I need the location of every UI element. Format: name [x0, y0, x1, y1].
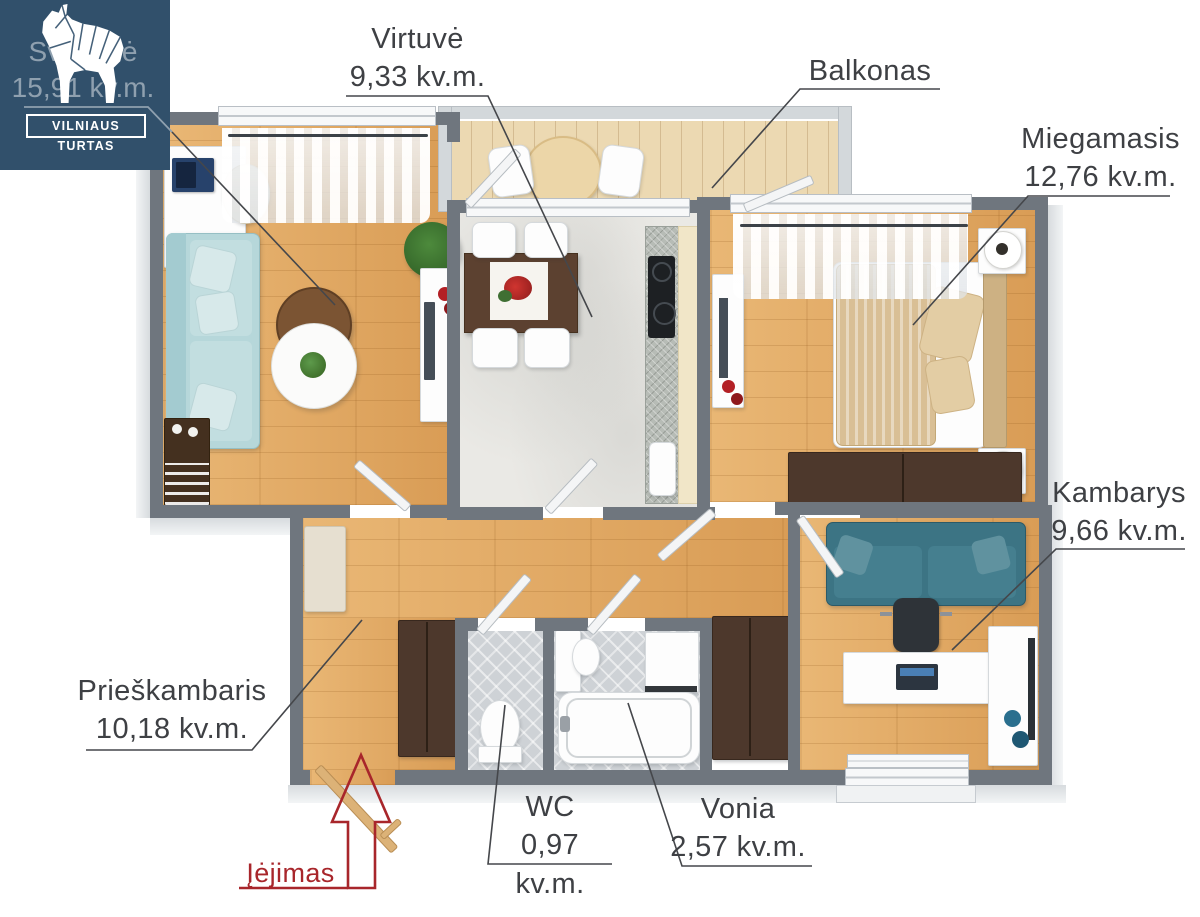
- wall-extrusion-left: [136, 118, 150, 518]
- balcony-railing-top: [440, 106, 852, 121]
- room-label-kambarys: Kambarys 9,66 kv.m.: [1044, 474, 1194, 551]
- room-label-miegamasis: Miegamasis 12,76 kv.m.: [1008, 120, 1193, 197]
- room-label-balkonas: Balkonas: [795, 52, 945, 90]
- shelf-decor: [188, 427, 198, 437]
- shelf-decor: [172, 424, 182, 434]
- wall-segment: [1035, 197, 1048, 515]
- wall-segment: [697, 197, 710, 515]
- room-label-wc: WC 0,97 kv.m.: [485, 788, 615, 903]
- office-chair-arm: [880, 612, 892, 616]
- living-tv: [424, 302, 435, 380]
- wall-segment: [455, 618, 468, 770]
- room-area: 10,18 kv.m.: [72, 710, 272, 748]
- red-vase: [731, 393, 743, 405]
- room-area: 9,66 kv.m.: [1044, 512, 1194, 550]
- wall-segment: [645, 618, 705, 631]
- red-vase: [722, 380, 735, 393]
- laptop-screen: [176, 162, 196, 188]
- room-area: 2,57 kv.m.: [658, 828, 818, 866]
- room-name: WC: [485, 788, 615, 826]
- bookshelf: [164, 418, 210, 506]
- wall-segment: [395, 770, 845, 785]
- kitchen-counter-cream: [678, 226, 698, 504]
- room-area: 12,76 kv.m.: [1008, 158, 1193, 196]
- bed-headboard: [983, 264, 1007, 448]
- bedroom-curtain-rod: [740, 224, 968, 227]
- entrance-text: Įėjimas: [228, 856, 353, 892]
- desk-laptop-screen: [900, 668, 934, 676]
- wall-segment: [447, 112, 460, 142]
- office-chair: [893, 598, 939, 652]
- washing-machine: [645, 632, 699, 692]
- balcony-chair: [487, 143, 536, 198]
- flower-leaves: [498, 290, 512, 302]
- office-chair-arm: [940, 612, 952, 616]
- room-area: 9,33 kv.m.: [330, 58, 505, 96]
- room-name: Balkonas: [795, 52, 945, 90]
- room-label-virtuve: Virtuvė 9,33 kv.m.: [330, 20, 505, 97]
- floor-plan: Svetainė 15,91 kv.m. VILNIAUS TURTAS: [0, 0, 1200, 917]
- living-window: [218, 106, 436, 126]
- closet-wardrobe: [712, 616, 790, 760]
- bathtub-inner: [566, 698, 692, 758]
- bedside-lamp-center: [996, 243, 1008, 255]
- wardrobe-handle-line: [749, 618, 751, 756]
- bedroom-tv: [719, 298, 728, 378]
- bathroom-sink: [572, 638, 600, 676]
- cooktop-burner: [653, 302, 676, 325]
- bedroom-window: [730, 194, 972, 213]
- bed-pillow: [924, 355, 977, 416]
- wall-segment: [150, 505, 350, 518]
- cooktop-burner: [652, 262, 672, 282]
- blue-decor: [1004, 710, 1021, 727]
- dining-chair: [472, 328, 518, 368]
- living-curtain: [222, 128, 430, 223]
- kambarys-radiator: [847, 754, 969, 768]
- entrance-threshold: [310, 770, 395, 785]
- brand-name: VILNIAUS TURTAS: [26, 114, 146, 138]
- wolf-logo-icon: [20, 4, 148, 114]
- wall-segment: [700, 618, 712, 770]
- wall-segment: [447, 507, 543, 520]
- wardrobe-handle-line: [426, 622, 428, 752]
- room-label-vonia: Vonia 2,57 kv.m.: [658, 790, 818, 867]
- room-label-prieskambaris: Prieškambaris 10,18 kv.m.: [72, 672, 272, 749]
- room-name: Virtuvė: [330, 20, 505, 58]
- room-name: Prieškambaris: [72, 672, 272, 710]
- kambarys-tv: [1028, 638, 1035, 740]
- kitchen-sink: [649, 442, 676, 496]
- entrance-label: Įėjimas: [228, 856, 353, 892]
- bathtub-faucet: [560, 716, 570, 732]
- toilet-tank: [478, 746, 522, 763]
- dining-chair: [524, 328, 570, 368]
- room-name: Vonia: [658, 790, 818, 828]
- wardrobe-handle-line: [902, 454, 904, 506]
- wall-segment: [860, 505, 1052, 518]
- blue-decor: [1012, 731, 1029, 748]
- wall-segment: [543, 618, 554, 770]
- wall-segment: [150, 112, 163, 518]
- kitchen-window: [466, 198, 690, 217]
- wall-segment: [447, 205, 460, 520]
- table-plant: [300, 352, 326, 378]
- dining-chair: [524, 222, 568, 258]
- living-sofa-back: [166, 233, 186, 447]
- wall-segment: [290, 505, 303, 785]
- sofa-pillow: [194, 290, 240, 336]
- hallway-bench: [304, 526, 346, 612]
- balcony-chair: [597, 143, 646, 198]
- dining-chair: [472, 222, 516, 258]
- room-area: 0,97 kv.m.: [485, 826, 615, 903]
- room-name: Kambarys: [1044, 474, 1194, 512]
- kambarys-window-sill: [836, 785, 976, 803]
- living-curtain-rod: [228, 134, 428, 137]
- hallway-floor: [302, 518, 788, 618]
- room-name: Miegamasis: [1008, 120, 1193, 158]
- wall-extrusion-bottom-left: [150, 518, 302, 535]
- wall-segment: [788, 505, 800, 770]
